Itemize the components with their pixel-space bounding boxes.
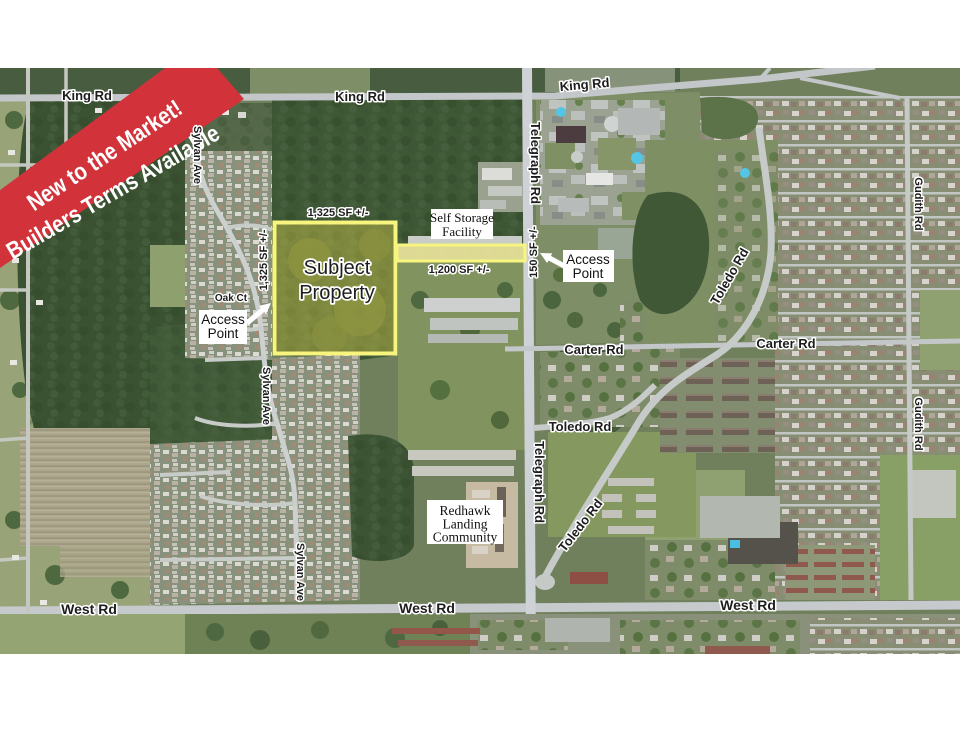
svg-text:1,200 SF +/-: 1,200 SF +/- <box>429 264 490 276</box>
svg-text:Telegraph Rd: Telegraph Rd <box>528 122 543 204</box>
svg-text:Access: Access <box>201 312 245 327</box>
svg-text:West Rd: West Rd <box>61 601 117 617</box>
svg-text:Sylvan Ave: Sylvan Ave <box>191 126 203 184</box>
svg-text:Point: Point <box>573 266 604 281</box>
svg-text:Point: Point <box>208 326 239 341</box>
svg-text:1,325 SF +/-: 1,325 SF +/- <box>308 207 369 219</box>
svg-text:Facility: Facility <box>442 224 482 239</box>
svg-text:1,325 SF +/-: 1,325 SF +/- <box>258 229 270 290</box>
svg-text:Carter Rd: Carter Rd <box>564 342 623 357</box>
svg-text:150 SF +/-: 150 SF +/- <box>528 226 540 278</box>
svg-text:Telegraph Rd: Telegraph Rd <box>532 441 547 523</box>
svg-text:Property: Property <box>299 282 375 304</box>
svg-text:King Rd: King Rd <box>335 89 385 104</box>
svg-text:Gudith Rd: Gudith Rd <box>912 397 924 450</box>
svg-text:Community: Community <box>433 530 498 545</box>
svg-text:Sylvan Ave: Sylvan Ave <box>260 367 272 425</box>
svg-text:Toledo Rd: Toledo Rd <box>549 419 612 434</box>
svg-text:Carter Rd: Carter Rd <box>756 336 815 351</box>
svg-text:Access: Access <box>566 252 610 267</box>
svg-text:West Rd: West Rd <box>720 597 776 613</box>
svg-text:Subject: Subject <box>304 257 371 279</box>
svg-text:Sylvan Ave: Sylvan Ave <box>294 543 306 601</box>
svg-text:Gudith Rd: Gudith Rd <box>912 177 924 230</box>
svg-text:West Rd: West Rd <box>399 600 455 616</box>
svg-text:Oak Ct: Oak Ct <box>215 293 248 304</box>
svg-text:Self Storage: Self Storage <box>430 210 494 225</box>
svg-text:King Rd: King Rd <box>62 88 112 103</box>
